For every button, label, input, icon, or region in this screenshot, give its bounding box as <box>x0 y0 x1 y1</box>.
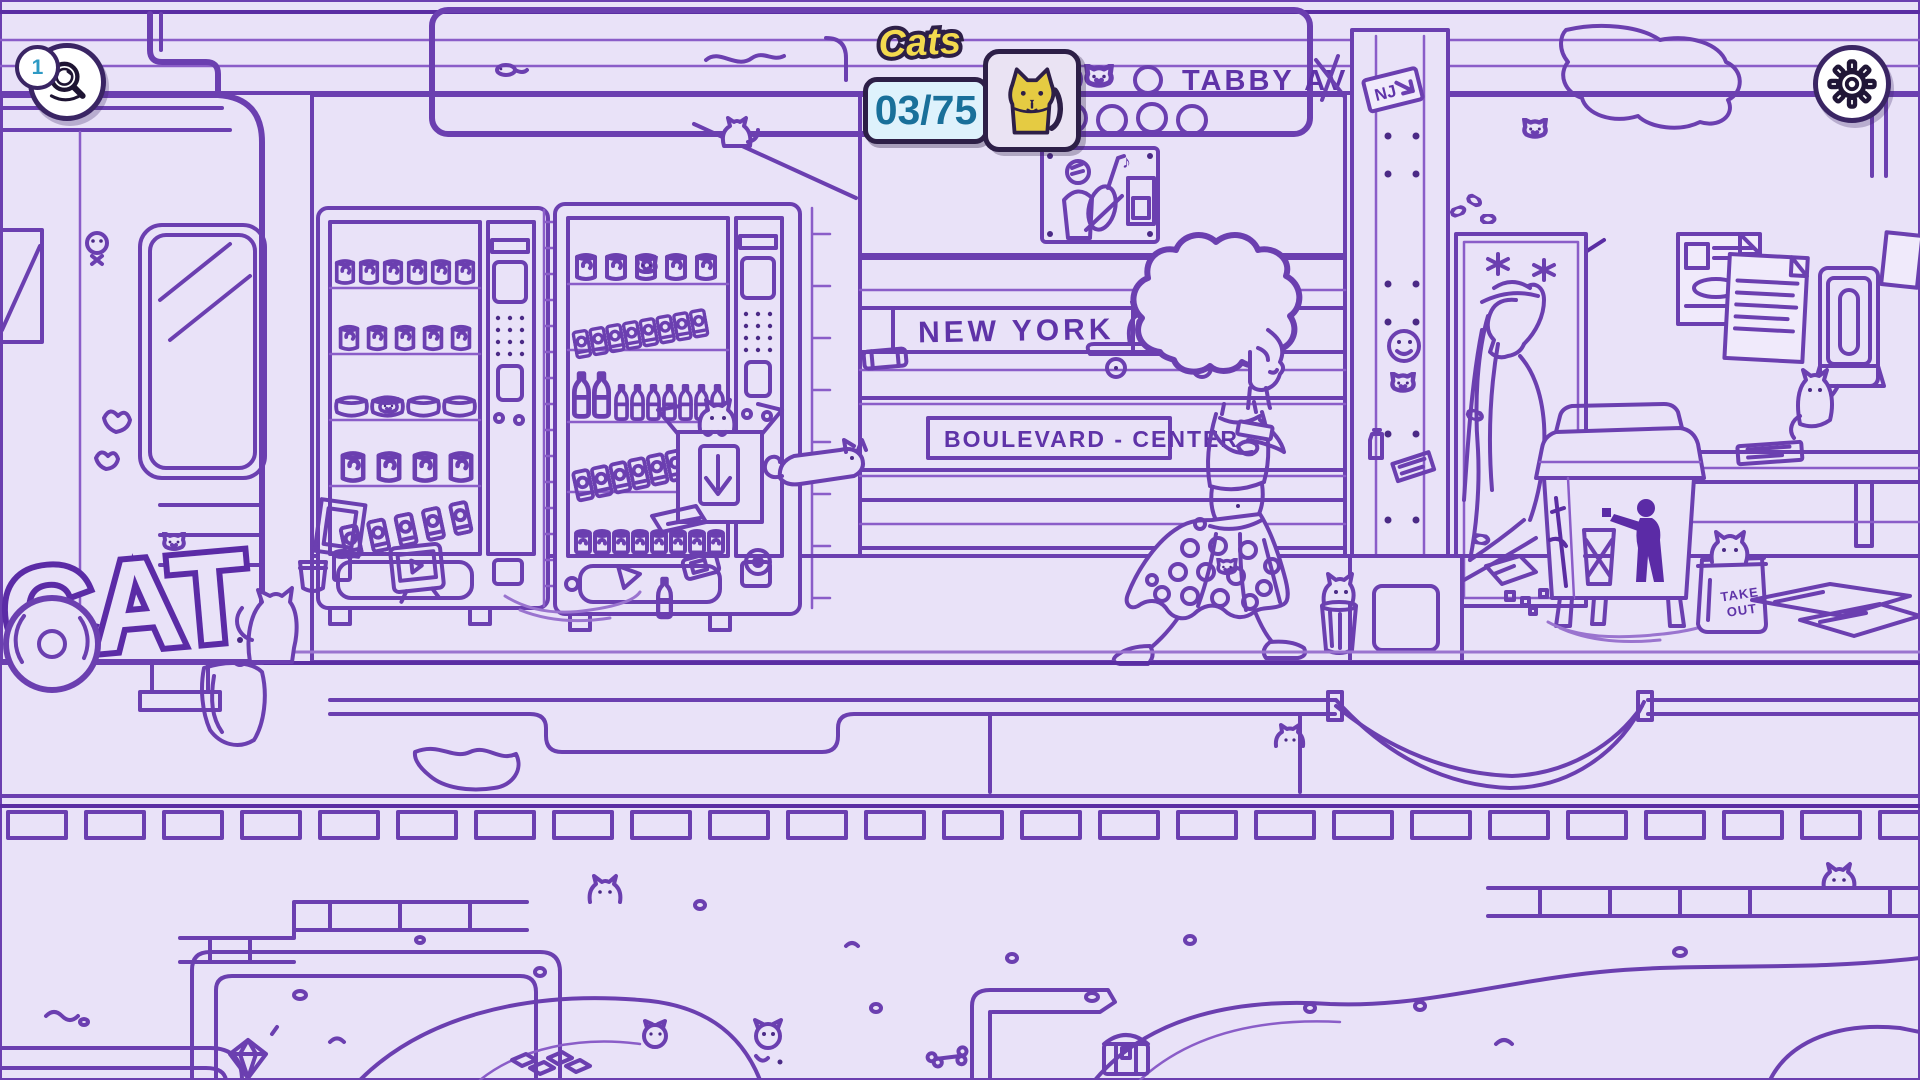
settings-button[interactable] <box>1813 45 1891 123</box>
flyer-3 <box>1881 232 1920 287</box>
cat-skull-doodle <box>755 1020 783 1065</box>
music-note: ♪ <box>1122 152 1131 172</box>
vending-machine-2 <box>555 204 800 630</box>
cat-counter-label: Cats Cats <box>859 19 982 77</box>
gear-icon <box>1826 58 1878 110</box>
top-pipe-elbow <box>826 38 846 80</box>
cat-face-ground <box>644 1021 666 1047</box>
pebbles <box>80 901 1686 1025</box>
scene-illustration: TABBY AVE. ♪ <box>0 0 1920 1080</box>
hint-count-badge: 1 <box>15 45 60 90</box>
subway-train: CAT <box>0 95 291 710</box>
wall-corner <box>812 208 830 608</box>
woman-legs <box>1148 614 1274 650</box>
ledge-cat[interactable] <box>1824 864 1855 888</box>
wall-flyers <box>1678 232 1920 362</box>
musician-plaque: ♪ <box>1042 148 1158 242</box>
platform-edge <box>0 640 1920 838</box>
cat-counter-value: 03/75 <box>863 77 989 144</box>
cat-counter: Cats Cats <box>860 22 990 74</box>
takeout-bag: TAKE OUT <box>1698 532 1766 632</box>
top-squiggle <box>706 55 784 62</box>
bench-sign-text: NEW YORK <box>918 313 1115 349</box>
wall-brace <box>694 118 856 198</box>
loose-bricks <box>512 1052 590 1074</box>
hint-count: 1 <box>32 56 44 80</box>
brick-cat-doodle[interactable] <box>1524 119 1546 136</box>
bone-doodle <box>927 1042 971 1075</box>
train-wheel <box>6 598 98 690</box>
low-wall-right <box>1488 888 1920 916</box>
tile-cat-face[interactable] <box>1087 65 1112 85</box>
station-board-text: BOULEVARD - CENTER <box>944 426 1239 452</box>
wall-peek-cat[interactable] <box>590 876 621 902</box>
phone-kitten[interactable] <box>1791 370 1832 438</box>
steel-pillar: NJ <box>1350 30 1462 662</box>
flyer-2 <box>1724 254 1807 362</box>
terrain-edge <box>1095 958 1920 1080</box>
game-stage: TABBY AVE. ♪ <box>0 0 1920 1080</box>
hanging-tarp <box>1328 692 1652 788</box>
pillar-base <box>1350 556 1462 662</box>
ground-pipe-b <box>972 990 1115 1080</box>
ground-pipe-a <box>192 952 560 1080</box>
ground <box>0 864 1920 1080</box>
hanging-rag <box>415 749 519 790</box>
gem-doodle <box>230 1027 277 1078</box>
takeout-bag-cat[interactable] <box>1712 532 1748 562</box>
chest-doodle <box>1104 1035 1148 1074</box>
track-ties <box>8 812 1920 838</box>
found-cat-thumbnail <box>983 49 1081 152</box>
payphone <box>1806 95 1886 420</box>
yellow-cat-icon <box>999 65 1065 137</box>
